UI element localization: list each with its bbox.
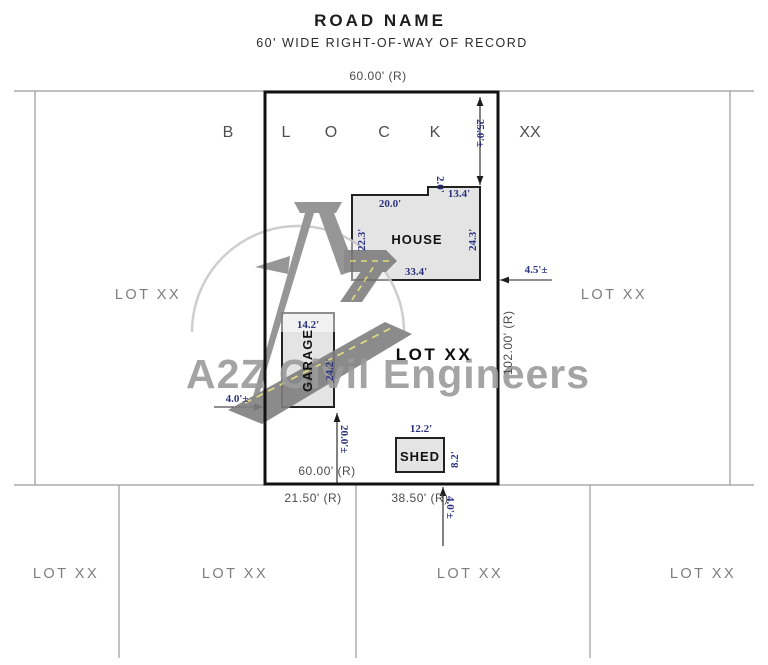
adjacent-lot-left-label: LOT XX bbox=[115, 287, 181, 303]
adjacent-lot-bottom-1: LOT XX bbox=[33, 566, 99, 582]
dim-lot-front: 60.00' (R) bbox=[349, 69, 406, 83]
dim-rear-right: 38.50' (R) bbox=[391, 491, 448, 505]
dim-shed-depth: 8.2' bbox=[449, 451, 461, 468]
dim-front-setback: 25.0'± bbox=[474, 119, 486, 147]
dim-lot-rear: 60.00' (R) bbox=[298, 464, 355, 478]
adjacent-lot-bottom-4: LOT XX bbox=[670, 566, 736, 582]
dim-shed-rear: 4.0'± bbox=[444, 496, 456, 519]
dim-house-right: 24.3' bbox=[467, 229, 479, 251]
subject-lot-label: LOT XX bbox=[396, 345, 472, 364]
block-number: XX bbox=[519, 124, 541, 141]
dim-house-left: 22.3' bbox=[356, 229, 368, 251]
adjacent-lot-bottom-3: LOT XX bbox=[437, 566, 503, 582]
dim-shed-width: 12.2' bbox=[410, 423, 432, 435]
dim-east-setback: 4.5'± bbox=[525, 264, 548, 276]
dim-house-bottom: 33.4' bbox=[405, 266, 427, 278]
dim-rear-left: 21.50' (R) bbox=[284, 491, 341, 505]
dim-lot-depth: 102.00' (R) bbox=[501, 311, 515, 376]
dim-house-top-right: 13.4' bbox=[448, 188, 470, 200]
watermark-text: A2Z Civil Engineers bbox=[186, 351, 590, 397]
block-letter-o: O bbox=[325, 124, 337, 141]
house-label: HOUSE bbox=[391, 232, 442, 247]
plot-plan-canvas: A2Z Civil Engineers ROAD NAME 60' WIDE R… bbox=[0, 0, 768, 665]
dim-garage-rear: 20.0'± bbox=[338, 425, 350, 453]
shed-label: SHED bbox=[400, 449, 440, 464]
right-of-way-note: 60' WIDE RIGHT-OF-WAY OF RECORD bbox=[256, 36, 528, 50]
dim-house-notch: 2.0' bbox=[434, 176, 446, 193]
dim-house-top: 20.0' bbox=[379, 198, 401, 210]
block-letter-l: L bbox=[282, 124, 291, 141]
dim-garage-depth: 24.2' bbox=[324, 359, 336, 381]
garage-label: GARAGE bbox=[300, 329, 315, 392]
adjacent-lot-bottom-2: LOT XX bbox=[202, 566, 268, 582]
block-letter-b: B bbox=[223, 124, 234, 141]
watermark-logo bbox=[192, 92, 412, 485]
block-letter-c: C bbox=[378, 124, 390, 141]
block-letter-k: K bbox=[430, 124, 441, 141]
road-name-title: ROAD NAME bbox=[314, 11, 446, 30]
plot-plan-page: A2Z Civil Engineers ROAD NAME 60' WIDE R… bbox=[0, 0, 768, 665]
dim-west-setback: 4.0'± bbox=[226, 393, 249, 405]
adjacent-lot-right-label: LOT XX bbox=[581, 287, 647, 303]
